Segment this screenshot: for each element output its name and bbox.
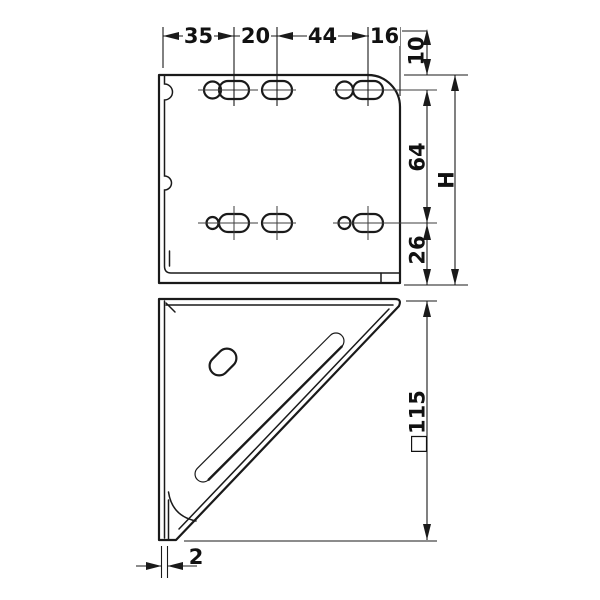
bracket-drawing-canvas: 35 20 44 16 10 64 26 H □115 2 (0, 0, 600, 600)
bend-arc (169, 492, 197, 521)
dim-square-115-label: □115 (405, 390, 429, 454)
dim-10-label: 10 (404, 36, 428, 65)
gusset-view (159, 299, 400, 540)
dim-35-label: 35 (184, 24, 213, 48)
dim-44-label: 44 (308, 24, 337, 48)
dim-16-label: 16 (370, 24, 399, 48)
dim-64-label: 64 (405, 142, 429, 171)
dim-H-label: H (434, 171, 458, 189)
dim-2-label: 2 (189, 545, 204, 569)
diagonal-slot (192, 330, 348, 486)
gusset-inner-hypotenuse (179, 309, 389, 529)
hole-centerlines (198, 90, 437, 240)
flange-inner-edge (165, 76, 400, 273)
dim-20-label: 20 (241, 24, 270, 48)
vertical-leg-view (159, 75, 437, 283)
technical-drawing: 35 20 44 16 10 64 26 H □115 2 (0, 0, 600, 600)
oval-hole (206, 345, 241, 380)
dim-26-label: 26 (405, 235, 429, 264)
dimension-labels: 35 20 44 16 10 64 26 H □115 2 (183, 24, 458, 569)
plate-outline (159, 75, 400, 283)
dimension-lines (136, 27, 468, 578)
